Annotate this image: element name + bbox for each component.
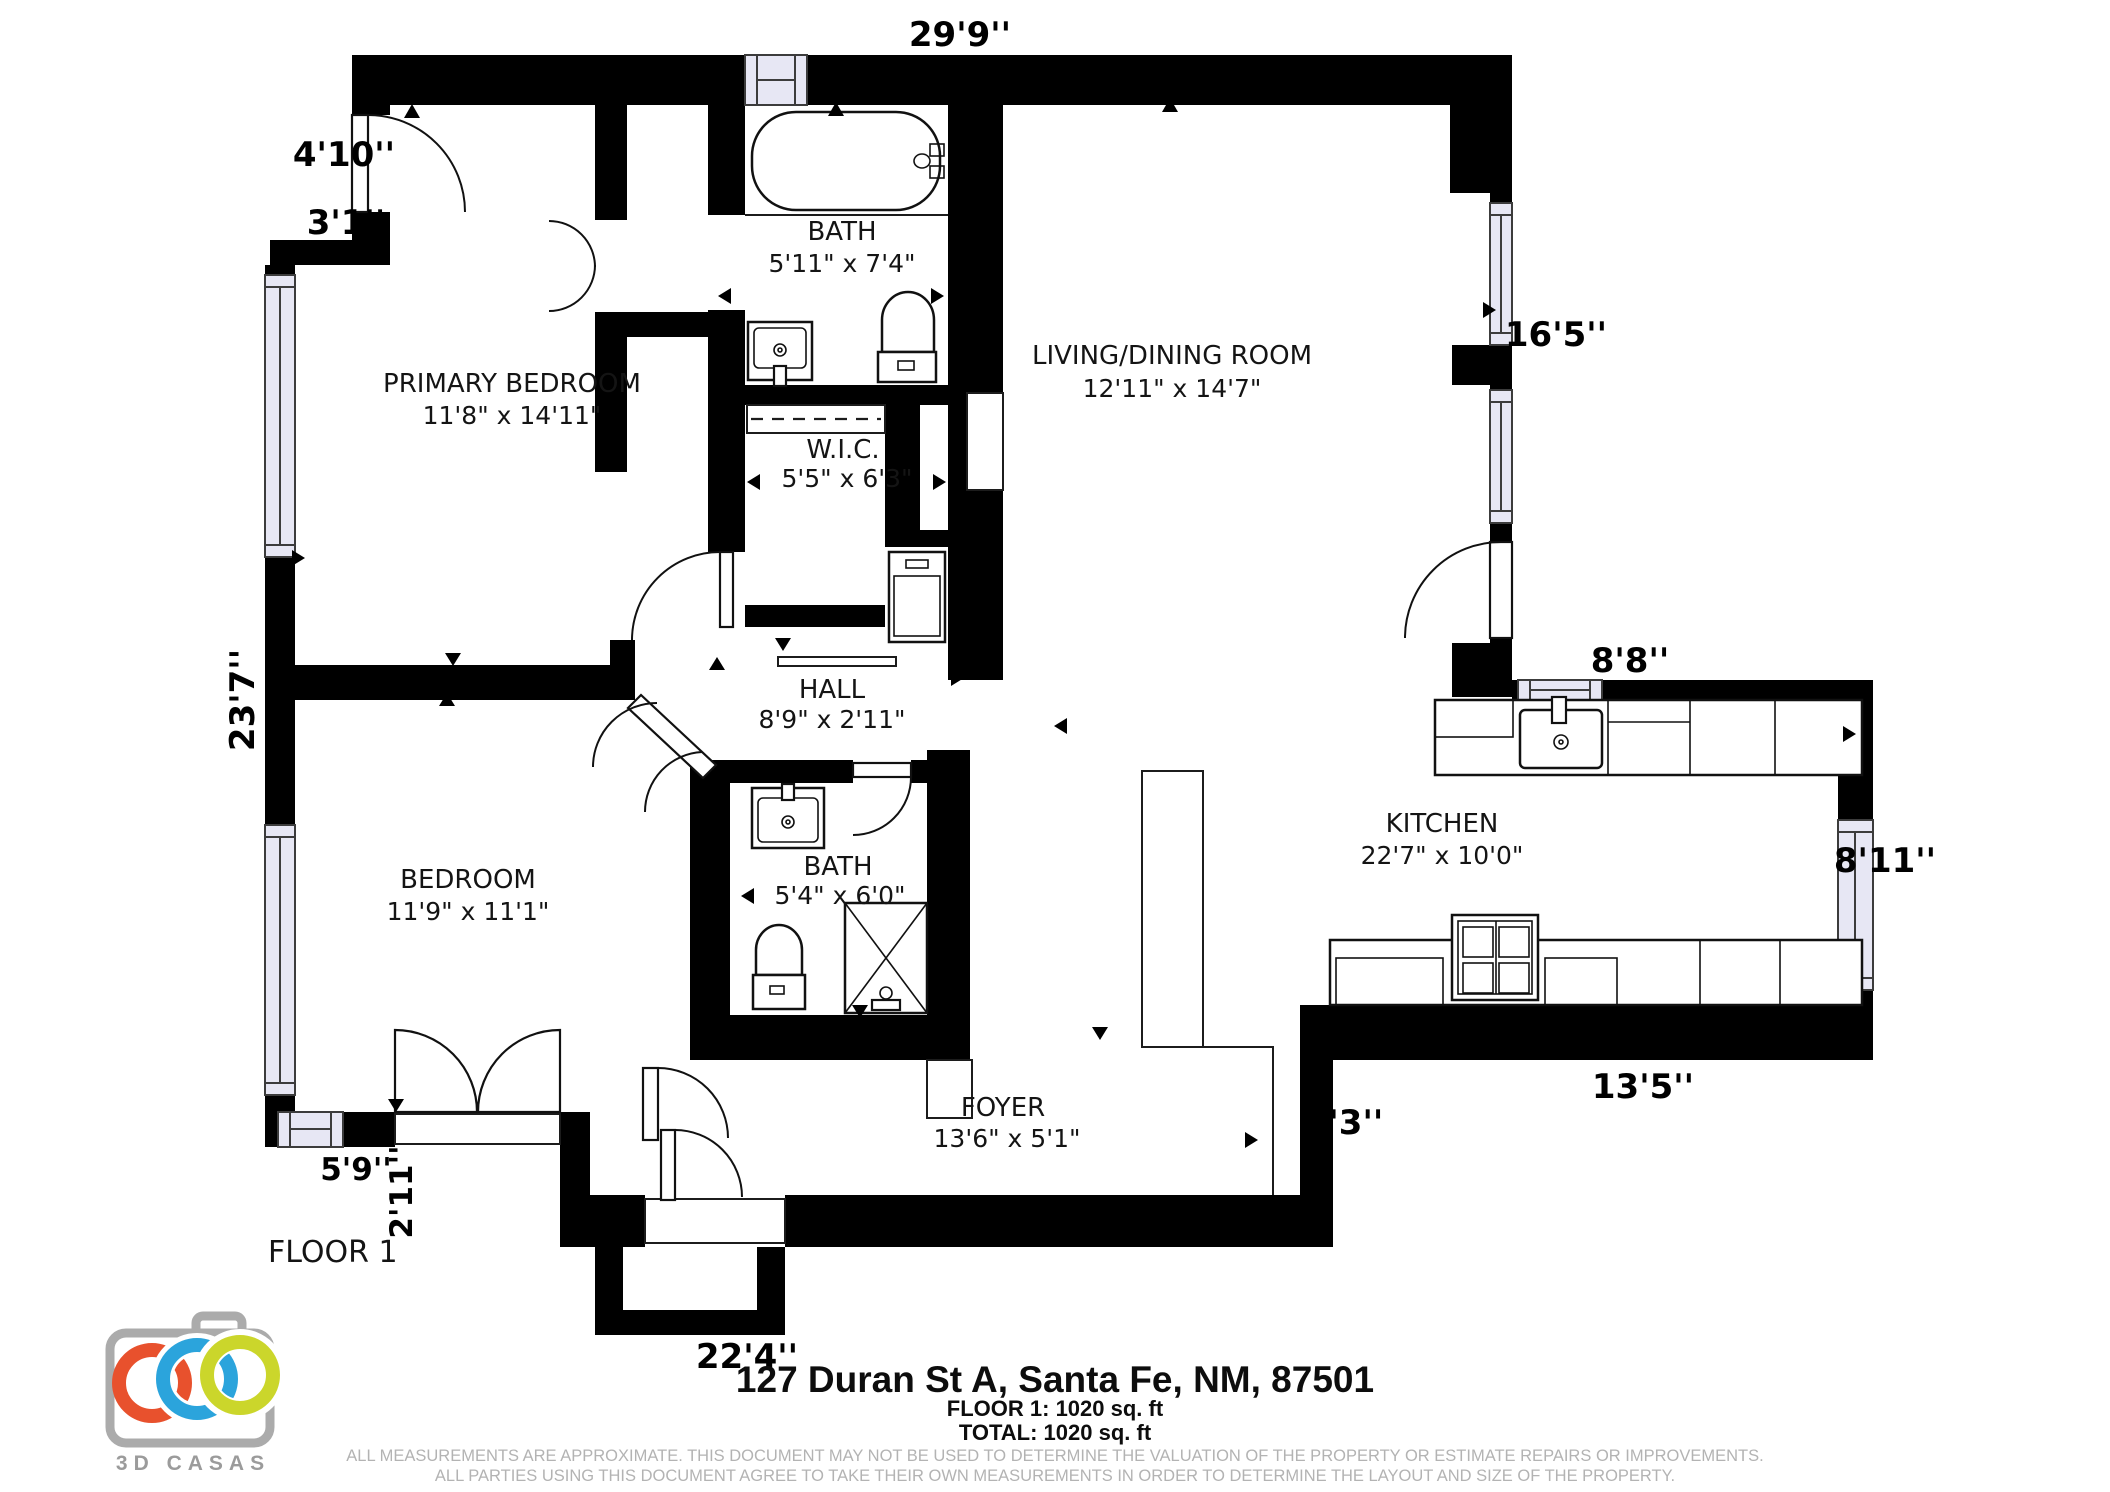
room-living-dining-dims: 12'11" x 14'7" (1083, 374, 1262, 403)
washer (889, 552, 945, 642)
fixtures (748, 112, 1862, 1013)
dim-top: 29'9'' (909, 15, 1011, 55)
address: 127 Duran St A, Santa Fe, NM, 87501 (736, 1359, 1374, 1400)
bath2-door (853, 763, 911, 835)
room-wic-dims: 5'5" x 6'3" (781, 464, 912, 493)
kitchen-counter-bottom (1330, 915, 1862, 1005)
dim-kitchen-right: 8'11'' (1834, 841, 1936, 881)
dim-living-right: 16'5'' (1505, 315, 1607, 355)
closet-double-doors (549, 221, 595, 311)
floor-area: FLOOR 1: 1020 sq. ft (947, 1396, 1164, 1421)
room-bath2-dims: 5'4" x 6'0" (774, 881, 905, 910)
window-primary-bedroom (265, 275, 295, 557)
dim-kitchen-top: 8'8'' (1591, 641, 1670, 681)
bedroom-closet-double-doors (395, 1030, 560, 1144)
room-primary-bedroom-dims: 11'8" x 14'11" (423, 401, 602, 430)
living-room-door (1405, 542, 1512, 638)
window-bedroom-left (265, 825, 295, 1095)
dim-bedroom-bottom: 5'9'' (320, 1152, 392, 1188)
window-bath1-top (745, 55, 807, 105)
dim-closet-side: 2'11'' (384, 1145, 420, 1238)
foyer-inner-door (643, 1068, 728, 1140)
room-foyer: FOYER (961, 1093, 1045, 1123)
bathtub (752, 112, 944, 210)
kitchen-open-boundary (1142, 771, 1203, 1047)
room-bedroom-dims: 11'9" x 11'1" (387, 897, 550, 926)
entry-door (645, 1130, 785, 1243)
room-living-dining: LIVING/DINING ROOM (1032, 341, 1312, 371)
dim-kitchen-bottom: 13'5'' (1592, 1067, 1694, 1107)
floor-label: FLOOR 1 (268, 1235, 398, 1270)
hall-boundary-line (778, 657, 896, 666)
window-bedroom-bottom (278, 1112, 343, 1147)
kitchen-open-boundary-step (1203, 1047, 1273, 1195)
room-bath1-dims: 5'11" x 7'4" (769, 249, 916, 278)
total-area: TOTAL: 1020 sq. ft (959, 1420, 1152, 1445)
bath2-toilet (753, 925, 805, 1009)
shower (845, 903, 927, 1013)
room-bedroom: BEDROOM (400, 865, 536, 895)
wic-shelf (747, 405, 885, 433)
room-bath1: BATH (807, 217, 876, 247)
wic-door (632, 552, 733, 640)
logo: 3D CASAS (110, 1316, 275, 1475)
room-foyer-dims: 13'6" x 5'1" (934, 1124, 1081, 1153)
living-wall-niche (967, 393, 1003, 490)
dim-left-door: 4'10'' (293, 135, 395, 175)
logo-brand: 3D CASAS (116, 1452, 270, 1475)
stove (1452, 915, 1538, 1000)
bath1-toilet (878, 292, 936, 382)
room-bath2: BATH (803, 852, 872, 882)
footer: 127 Duran St A, Santa Fe, NM, 87501 FLOO… (346, 1359, 1763, 1485)
dim-foyer-right: 6'3'' (1305, 1103, 1384, 1143)
dim-left-side: 23'7'' (223, 649, 263, 751)
kitchen-counter-top (1435, 697, 1862, 775)
disclaimer-line1: ALL MEASUREMENTS ARE APPROXIMATE. THIS D… (346, 1447, 1763, 1465)
disclaimer-line2: ALL PARTIES USING THIS DOCUMENT AGREE TO… (435, 1467, 1675, 1485)
dim-left-step: 3'1'' (307, 203, 386, 243)
floorplan-canvas: PRIMARY BEDROOM 11'8" x 14'11" BATH 5'11… (0, 0, 2110, 1492)
floorplan-page: PRIMARY BEDROOM 11'8" x 14'11" BATH 5'11… (0, 0, 2110, 1492)
bath2-sink (752, 784, 824, 848)
room-wic: W.I.C. (806, 435, 879, 465)
room-hall: HALL (799, 675, 866, 705)
room-primary-bedroom: PRIMARY BEDROOM (383, 369, 641, 399)
room-hall-dims: 8'9" x 2'11" (759, 705, 906, 734)
bath1-sink (748, 322, 812, 386)
room-kitchen: KITCHEN (1386, 809, 1499, 839)
window-living-right-lower (1490, 390, 1512, 523)
room-kitchen-dims: 22'7" x 10'0" (1361, 841, 1524, 870)
